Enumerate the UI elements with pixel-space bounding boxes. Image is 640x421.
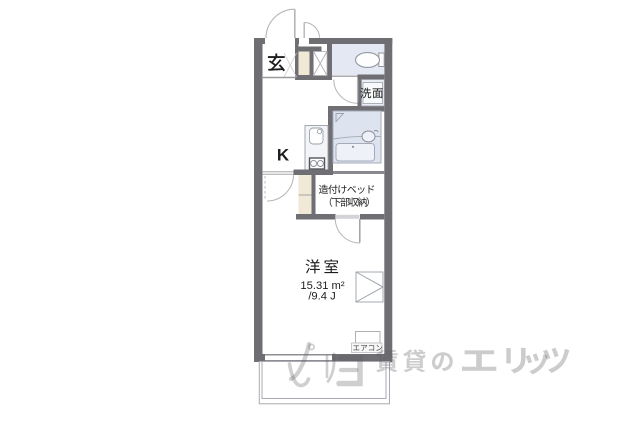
- svg-text:K: K: [277, 146, 290, 165]
- svg-text:/9.4 J: /9.4 J: [308, 291, 335, 303]
